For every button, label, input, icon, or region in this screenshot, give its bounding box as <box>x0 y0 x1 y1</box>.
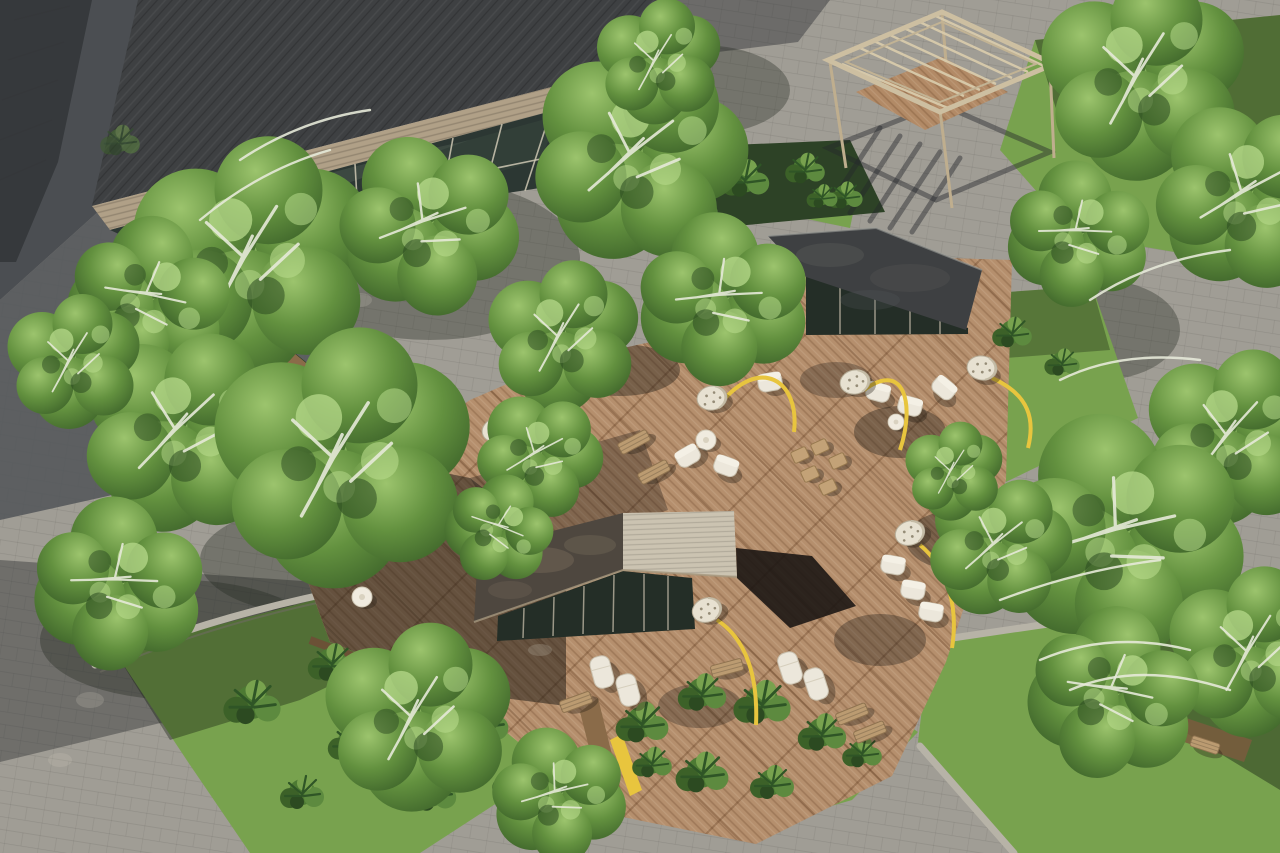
scene-canvas <box>0 0 1280 853</box>
courtyard-render <box>0 0 1280 853</box>
